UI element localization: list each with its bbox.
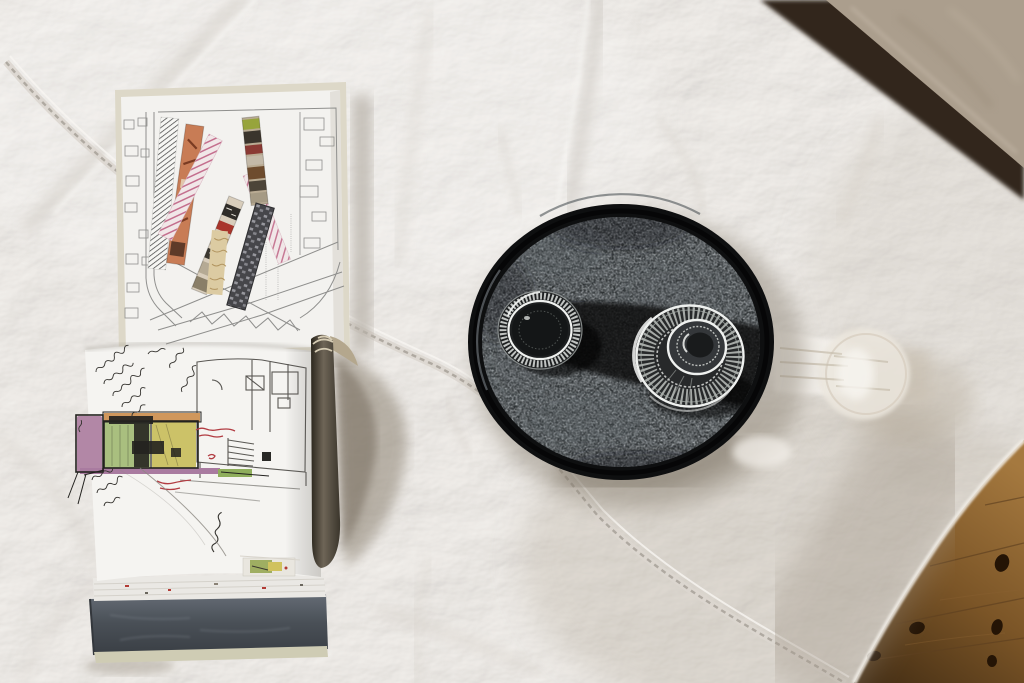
light-spill-under-tray: [732, 436, 792, 468]
sketchbook-cover: [90, 594, 328, 655]
carafe-neck-core: [687, 333, 714, 358]
site-plan-book: [115, 82, 372, 366]
bedroom-still-life-photo: [0, 0, 1024, 683]
thumbnail-sketch: [240, 556, 300, 576]
small-glass-glint: [524, 316, 530, 320]
small-glass-interior: [512, 304, 568, 356]
small-ribbed-glass: [498, 291, 582, 369]
caustic-hotspot: [838, 348, 874, 400]
book-shadow-right: [352, 96, 372, 352]
